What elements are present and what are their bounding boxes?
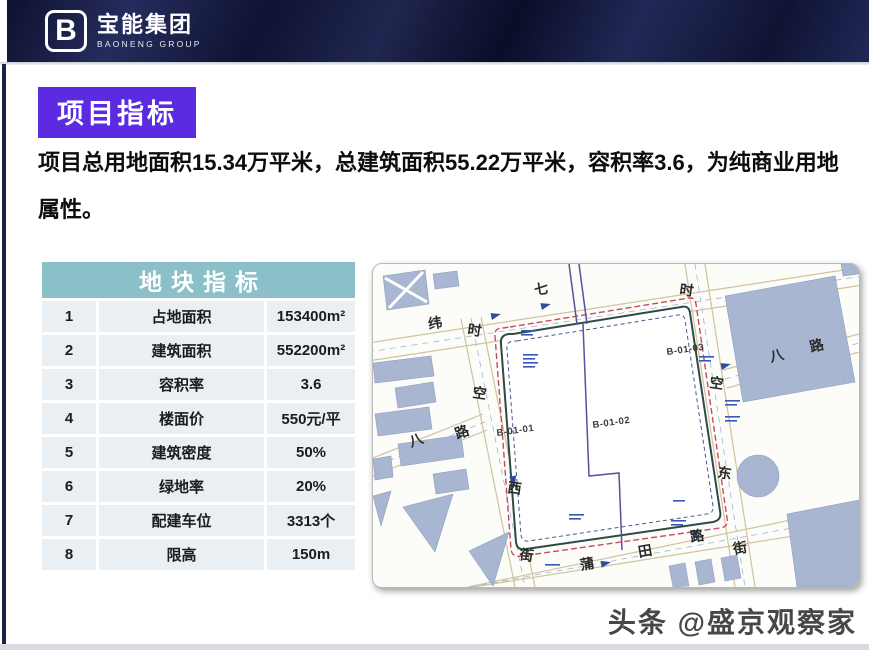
street-label: 纬 bbox=[427, 314, 443, 332]
row-label: 建筑面积 bbox=[99, 335, 264, 366]
street-label: 时 bbox=[467, 321, 483, 339]
bottom-edge-bar bbox=[0, 644, 869, 650]
indicator-table: 地块指标 1 占地面积 153400m² 2 建筑面积 552200m² 3 容… bbox=[42, 262, 355, 573]
street-label: 西 bbox=[507, 479, 523, 497]
company-name-cn: 宝能集团 bbox=[97, 13, 202, 36]
street-label: 时 bbox=[679, 281, 695, 299]
table-row: 3 容积率 3.6 bbox=[42, 369, 355, 400]
site-plan-svg: 七 纬 时 空 西 街 八 路 蒲 田 路 街 时 空 东 八 路 B-01-0… bbox=[373, 264, 859, 587]
row-label: 占地面积 bbox=[99, 301, 264, 332]
row-value: 50% bbox=[267, 437, 355, 468]
street-label: 空 bbox=[709, 374, 725, 392]
table-row: 1 占地面积 153400m² bbox=[42, 301, 355, 332]
row-number: 7 bbox=[42, 505, 96, 536]
logo-b-icon: B bbox=[45, 10, 87, 52]
logo-letter: B bbox=[55, 16, 77, 46]
watermark-text: 头条 @盛京观察家 bbox=[608, 601, 857, 641]
street-label: 七 bbox=[533, 280, 549, 298]
street-label: 田 bbox=[637, 542, 654, 560]
left-edge-stripe bbox=[2, 64, 6, 646]
row-value: 3313个 bbox=[267, 505, 355, 536]
row-number: 1 bbox=[42, 301, 96, 332]
row-value: 3.6 bbox=[267, 369, 355, 400]
row-number: 4 bbox=[42, 403, 96, 434]
site-plan-map: 七 纬 时 空 西 街 八 路 蒲 田 路 街 时 空 东 八 路 B-01-0… bbox=[372, 263, 860, 588]
street-label: 街 bbox=[731, 539, 749, 557]
row-value: 550元/平 bbox=[267, 403, 355, 434]
row-label: 楼面价 bbox=[99, 403, 264, 434]
row-value: 153400m² bbox=[267, 301, 355, 332]
table-title: 地块指标 bbox=[42, 262, 355, 298]
table-row: 4 楼面价 550元/平 bbox=[42, 403, 355, 434]
row-number: 2 bbox=[42, 335, 96, 366]
row-number: 5 bbox=[42, 437, 96, 468]
row-label: 配建车位 bbox=[99, 505, 264, 536]
baoneng-logo: B 宝能集团 BAONENG GROUP bbox=[45, 10, 202, 52]
row-label: 限高 bbox=[99, 539, 264, 570]
street-label: 空 bbox=[472, 384, 488, 402]
street-label: 街 bbox=[518, 546, 535, 564]
table-row: 7 配建车位 3313个 bbox=[42, 505, 355, 536]
table-row: 5 建筑密度 50% bbox=[42, 437, 355, 468]
street-label: 蒲 bbox=[579, 555, 596, 573]
table-row: 2 建筑面积 552200m² bbox=[42, 335, 355, 366]
row-label: 容积率 bbox=[99, 369, 264, 400]
table-row: 8 限高 150m bbox=[42, 539, 355, 570]
row-value: 20% bbox=[267, 471, 355, 502]
header-band: B 宝能集团 BAONENG GROUP bbox=[7, 0, 869, 62]
band-underline bbox=[0, 62, 869, 65]
row-number: 8 bbox=[42, 539, 96, 570]
row-value: 150m bbox=[267, 539, 355, 570]
page-title: 项目指标 bbox=[38, 87, 196, 138]
table-row: 6 绿地率 20% bbox=[42, 471, 355, 502]
row-label: 建筑密度 bbox=[99, 437, 264, 468]
row-number: 3 bbox=[42, 369, 96, 400]
intro-paragraph: 项目总用地面积15.34万平米，总建筑面积55.22万平米，容积率3.6，为纯商… bbox=[38, 139, 852, 233]
street-label: 东 bbox=[717, 464, 733, 482]
row-value: 552200m² bbox=[267, 335, 355, 366]
row-number: 6 bbox=[42, 471, 96, 502]
company-name-en: BAONENG GROUP bbox=[97, 40, 202, 49]
row-label: 绿地率 bbox=[99, 471, 264, 502]
